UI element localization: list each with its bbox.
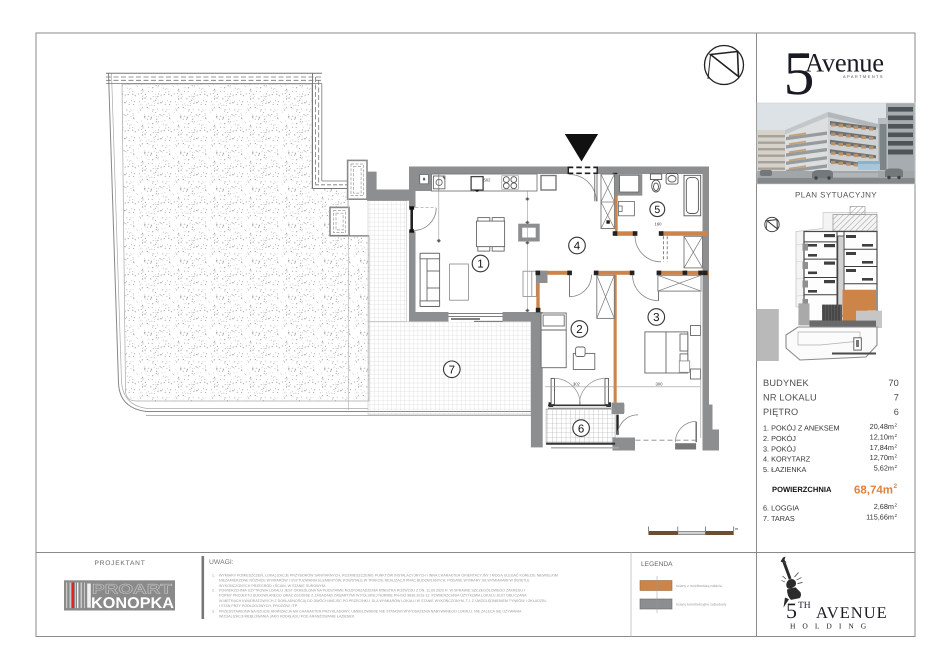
svg-text:ściany konstrukcyjne zabudowy: ściany konstrukcyjne zabudowy	[676, 603, 727, 607]
svg-text:3: 3	[653, 312, 659, 324]
svg-text:5: 5	[654, 204, 660, 216]
svg-text:2. POKÓJ: 2. POKÓJ	[763, 434, 796, 443]
svg-text:12,10m: 12,10m	[870, 432, 894, 441]
svg-text:7. TARAS: 7. TARAS	[763, 514, 795, 523]
svg-text:115,66m: 115,66m	[866, 512, 894, 521]
svg-text:KONOPKA: KONOPKA	[91, 595, 174, 612]
svg-text:2,68m: 2,68m	[874, 502, 894, 511]
svg-text:PLAN SYTUACYJNY: PLAN SYTUACYJNY	[795, 191, 877, 200]
svg-text:m: m	[735, 527, 738, 531]
svg-text:12,70m: 12,70m	[870, 453, 894, 462]
svg-text:160: 160	[655, 222, 663, 227]
svg-text:WYMIARY POMIESZCZEŃ, LOKALIZAC: WYMIARY POMIESZCZEŃ, LOKALIZACJE PRZYBOR…	[219, 573, 558, 578]
svg-text:5,62m: 5,62m	[874, 464, 894, 473]
svg-text:3.: 3.	[212, 610, 215, 614]
svg-text:1. POKÓJ Z ANEKSEM: 1. POKÓJ Z ANEKSEM	[763, 424, 840, 433]
svg-text:WYKOŃCZONYCH PRZEGRÓD I ŚCIAN,: WYKOŃCZONYCH PRZEGRÓD I ŚCIAN, W STANIE …	[219, 583, 326, 588]
svg-text:PIĘTRO: PIĘTRO	[763, 407, 798, 417]
svg-text:3. POKÓJ: 3. POKÓJ	[763, 444, 796, 453]
svg-text:APARTMENTS: APARTMENTS	[843, 74, 884, 79]
svg-text:2: 2	[894, 483, 898, 490]
svg-text:7: 7	[894, 393, 899, 403]
svg-text:4. KORYTARZ: 4. KORYTARZ	[763, 455, 811, 464]
svg-text:1.: 1.	[212, 574, 215, 578]
svg-text:6. LOGGIA: 6. LOGGIA	[763, 504, 799, 513]
svg-text:4: 4	[574, 241, 581, 253]
svg-text:Avenue: Avenue	[805, 48, 884, 78]
svg-text:68,74m: 68,74m	[854, 485, 893, 497]
svg-text:WIZUALIZACJI MEBLOWANIA JAKO P: WIZUALIZACJI MEBLOWANIA JAKO PODKŁADU PO…	[219, 614, 355, 619]
svg-text:1: 1	[477, 259, 483, 271]
svg-text:POWIERZCHNIA UŻYTKOWA LOKALU J: POWIERZCHNIA UŻYTKOWA LOKALU JEST OKREŚL…	[219, 588, 525, 593]
svg-text:LEGENDA: LEGENDA	[641, 561, 673, 568]
svg-text:2: 2	[576, 324, 582, 336]
svg-text:5: 5	[786, 598, 797, 623]
svg-text:20,48m: 20,48m	[870, 422, 894, 431]
svg-text:FORMY PROJEKTU BUDOWLANEGO ORA: FORMY PROJEKTU BUDOWLANEGO ORAZ ZGODNIE …	[219, 593, 527, 598]
svg-text:I STAN PRZY PODŁOGOWYCH, PROGÓ: I STAN PRZY PODŁOGOWYCH, PROGÓW, ITP.	[219, 603, 298, 608]
svg-text:PROJEKTANT: PROJEKTANT	[94, 560, 145, 567]
svg-text:6: 6	[894, 407, 899, 417]
svg-text:NIEZAMIERZONE RÓŻNICE WYMIARÓW: NIEZAMIERZONE RÓŻNICE WYMIARÓW I USYTUOW…	[219, 578, 530, 583]
svg-text:NR LOKALU: NR LOKALU	[763, 393, 817, 403]
svg-text:5. ŁAZIENKA: 5. ŁAZIENKA	[763, 465, 807, 474]
svg-text:UWAGI:: UWAGI:	[209, 559, 234, 566]
svg-text:TH: TH	[798, 601, 811, 611]
svg-text:70: 70	[888, 378, 899, 388]
svg-text:AVENUE: AVENUE	[816, 603, 888, 622]
svg-text:7: 7	[449, 365, 455, 377]
svg-text:BUDYNEK: BUDYNEK	[763, 378, 809, 388]
svg-text:17,84m: 17,84m	[870, 443, 894, 452]
svg-text:POWIERZCHNIA: POWIERZCHNIA	[772, 485, 832, 494]
svg-text:W METRACH KWADRATOWYCH Z DOKŁA: W METRACH KWADRATOWYCH Z DOKŁADNOŚCIĄ DO…	[219, 598, 547, 603]
svg-text:302: 302	[573, 381, 581, 386]
svg-text:ściany z możliwością nabicia: ściany z możliwością nabicia	[676, 584, 722, 588]
svg-text:HOLDING: HOLDING	[790, 622, 873, 631]
svg-text:502: 502	[484, 178, 492, 183]
svg-text:300: 300	[656, 381, 664, 386]
svg-text:PRZEDSTAWIONA NA RZUCIE ARANŻA: PRZEDSTAWIONA NA RZUCIE ARANŻACJA MA CHA…	[219, 609, 522, 614]
svg-text:2.: 2.	[212, 589, 215, 593]
svg-text:6: 6	[578, 423, 584, 435]
